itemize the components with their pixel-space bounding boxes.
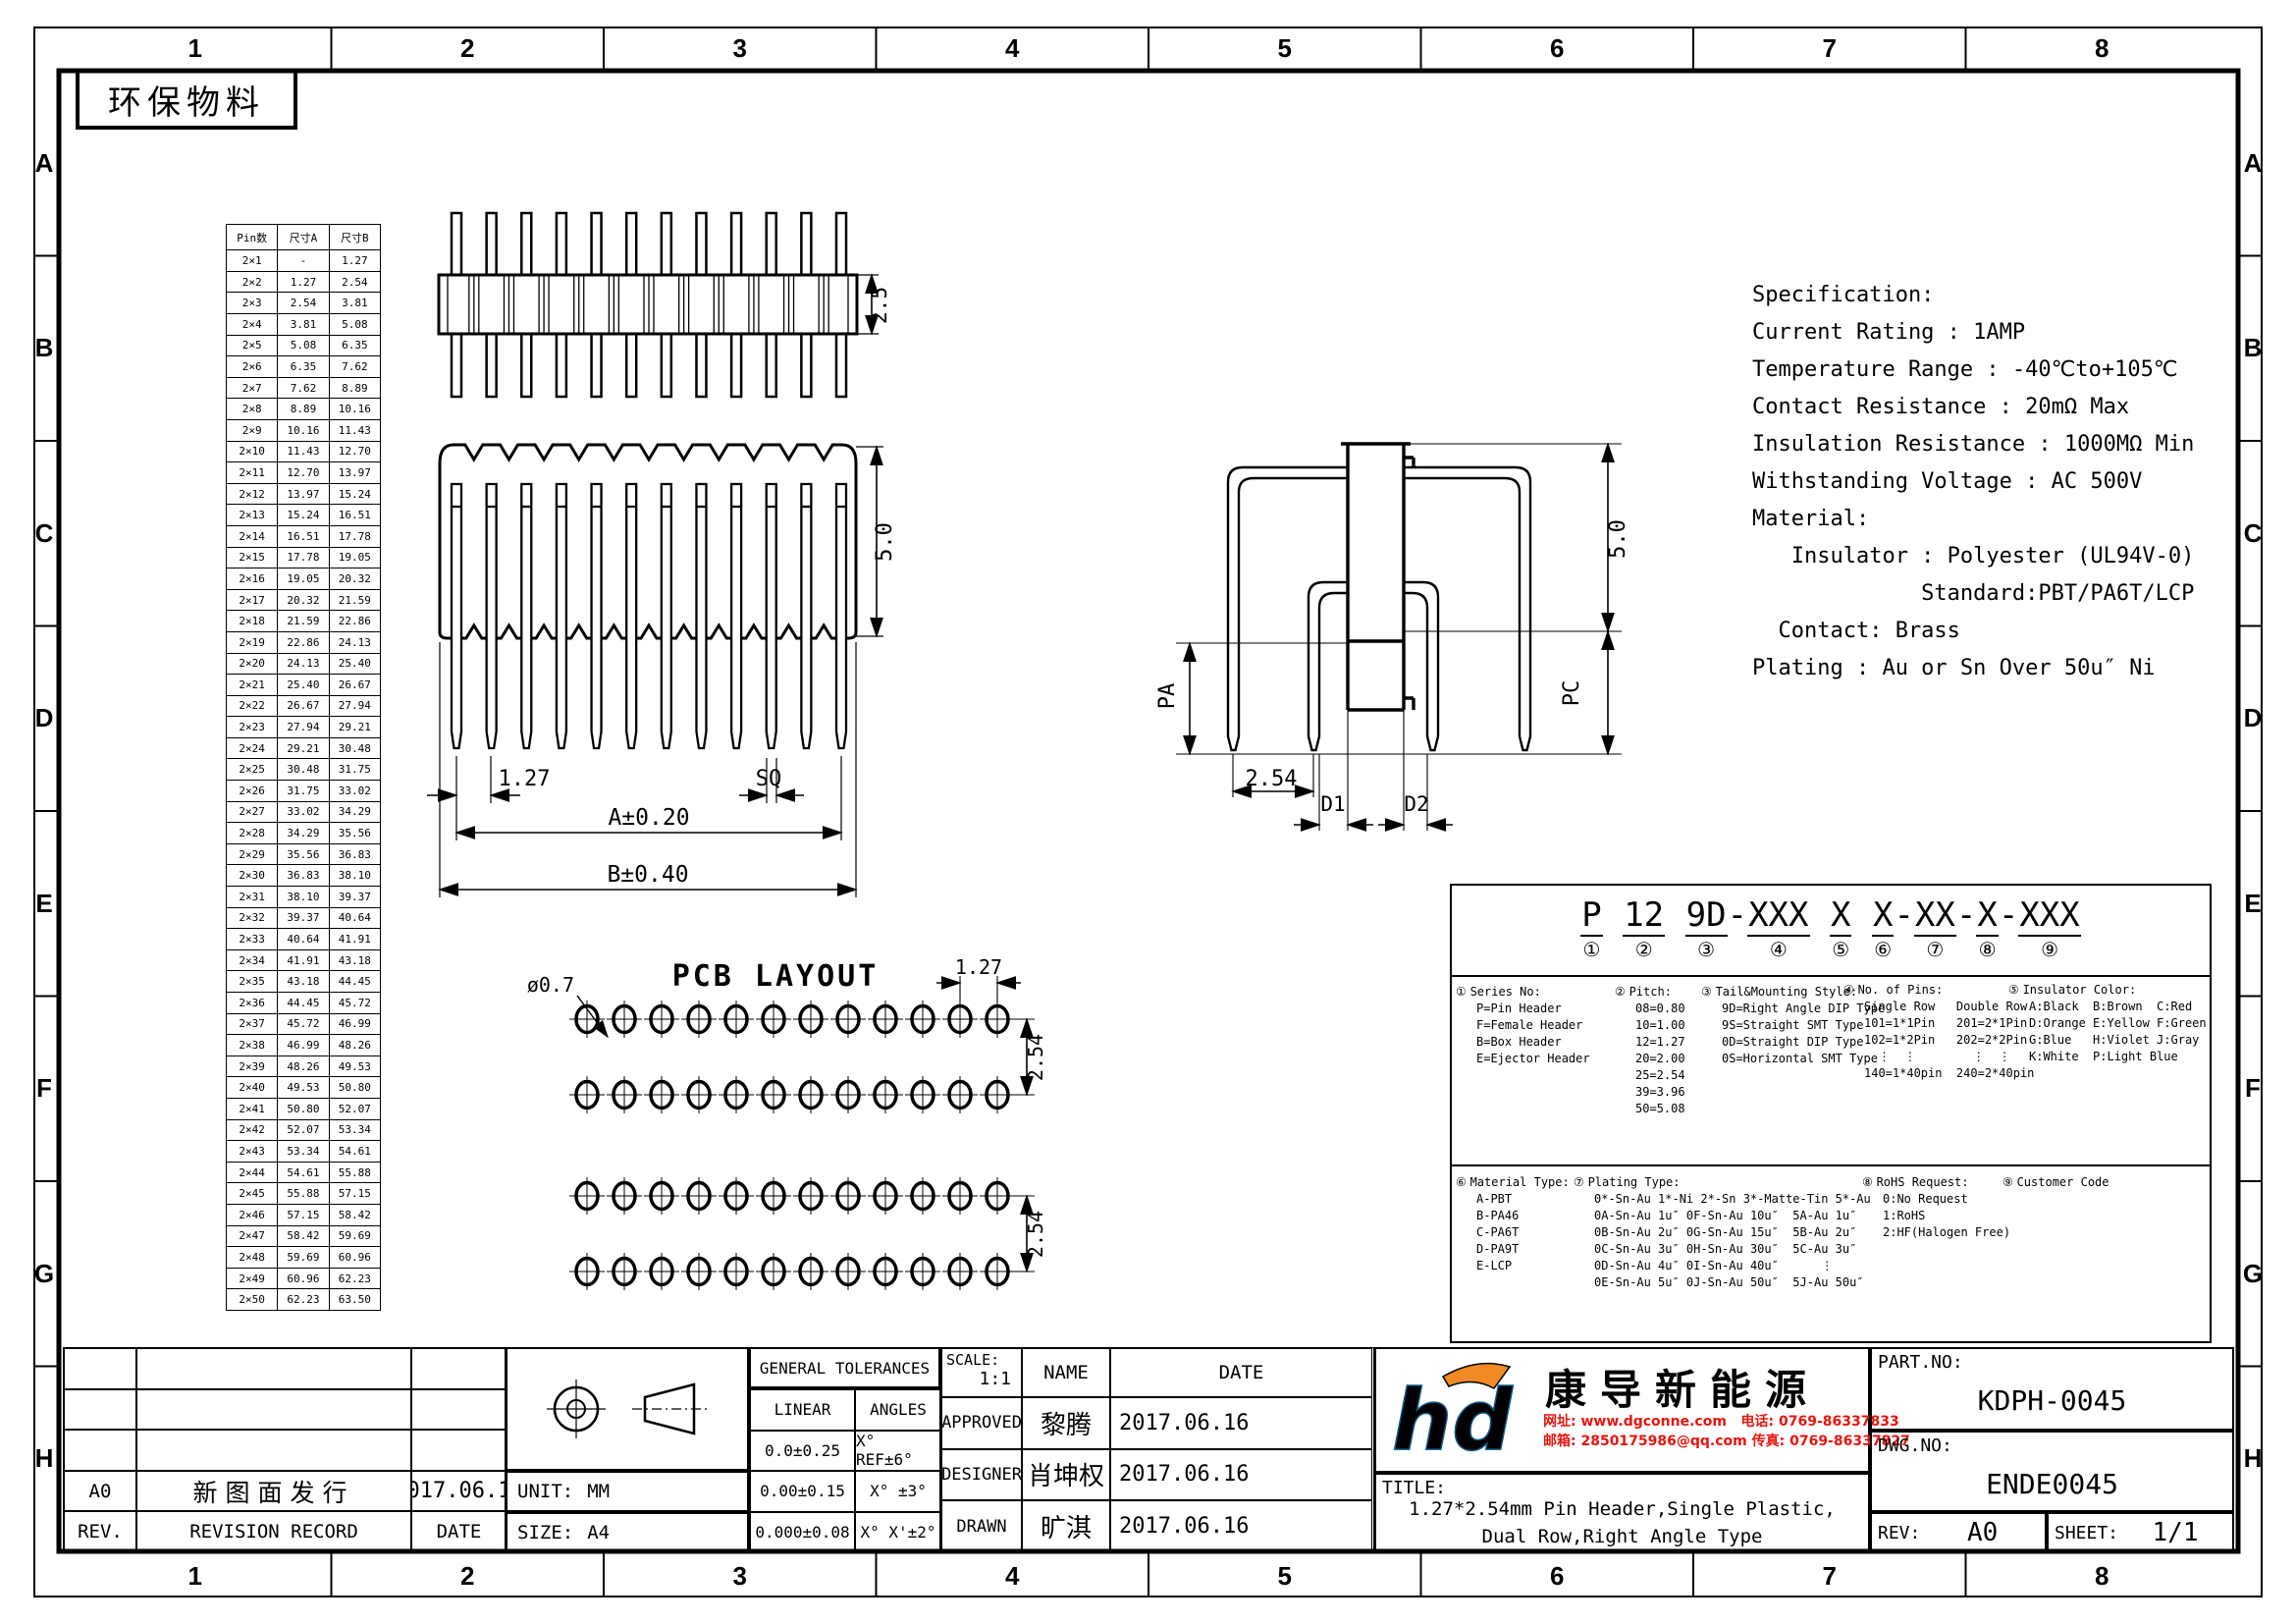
pin-table-row: 2×21.272.54 <box>227 271 381 293</box>
pin-table-row: 2×5062.2363.50 <box>227 1289 381 1311</box>
pin-table-header: Pin数尺寸A尺寸B <box>227 225 381 250</box>
legend-item: B=Box Header <box>1456 1034 1590 1051</box>
part-code-legend-section: ② Pitch:08=0.8010=1.0012=1.2720=2.0025=2… <box>1615 984 1685 1117</box>
dim-top-height: 2.5 <box>868 287 891 324</box>
revision-date-value: 2017.06.16 <box>411 1471 507 1512</box>
dim-front-pitch: 1.27 <box>499 767 551 791</box>
tolerance-angle-value: X° ±3° <box>855 1471 941 1512</box>
pin-table-row: 2×4859.6960.96 <box>227 1247 381 1269</box>
pin-table-row: 2×32.543.81 <box>227 293 381 314</box>
legend-item: A-PBT <box>1456 1191 1570 1208</box>
revision-table: A0 新图面发行 2017.06.16 REV. REVISION RECORD… <box>63 1347 506 1553</box>
legend-item: Single Row Double Row <box>1843 999 2034 1015</box>
dim-side-d1: D1 <box>1320 792 1345 816</box>
revision-empty-cell <box>64 1430 136 1471</box>
pin-table-row: 2×2429.2130.48 <box>227 737 381 759</box>
size-value: A4 <box>587 1522 610 1543</box>
grid-row-label: F <box>32 997 56 1182</box>
grid-row-label: F <box>2241 997 2265 1182</box>
company-name: 康导新能源 <box>1545 1357 1820 1417</box>
part-number-divider-1 <box>1450 975 2212 977</box>
pin-table-row: 2×43.815.08 <box>227 314 381 336</box>
grid-col-label: 1 <box>59 1557 332 1595</box>
pin-table-row: 2×77.628.89 <box>227 377 381 399</box>
size-cell: SIZE: A4 <box>506 1512 749 1553</box>
sheet-value: 1/1 <box>2118 1518 2232 1547</box>
grid-row-label: H <box>2241 1367 2265 1552</box>
company-block: hd 康导新能源 网址: www.dgconne.com 电话: 0769-86… <box>1374 1347 1870 1473</box>
revision-empty-cell <box>411 1430 507 1471</box>
pin-table-row: 2×1821.5922.86 <box>227 611 381 632</box>
grid-col-label: 4 <box>877 1557 1149 1595</box>
tolerances-table: LINEAR ANGLES 0.0±0.25 X° REF±6° 0.00±0.… <box>749 1388 940 1553</box>
legend-item: 0B-Sn-Au 2u″ 0G-Sn-Au 15u″ 5B-Au 2u″ <box>1574 1224 1871 1241</box>
legend-item: 39=3.96 <box>1615 1084 1685 1101</box>
legend-item: 102=1*2Pin 202=2*2Pin <box>1843 1032 2034 1049</box>
grid-row-label: B <box>32 256 56 442</box>
unit-value: MM <box>587 1481 610 1502</box>
legend-item: E=Ejector Header <box>1456 1051 1590 1067</box>
front-view: 5.0 1.27 SQ A±0.20 B±0.40 <box>427 445 897 897</box>
tolerances-angles-label: ANGLES <box>855 1389 941 1431</box>
pin-table-row: 2×1112.7013.97 <box>227 462 381 484</box>
company-contact-line2: 邮箱: 2850175986@qq.com 传真: 0769-86337827 <box>1543 1432 1910 1451</box>
scale-value: 1:1 <box>979 1369 1017 1389</box>
grid-row-label: C <box>2241 441 2265 626</box>
revision-empty-cell <box>136 1348 411 1389</box>
pin-table-row: 2×2024.1325.40 <box>227 653 381 675</box>
approved-name: 黎腾 <box>1022 1397 1110 1449</box>
pin-table-row: 2×1315.2416.51 <box>227 505 381 526</box>
legend-item: D:Orange E:Yellow F:Green <box>2008 1015 2207 1032</box>
code-separator: - <box>1956 895 1976 935</box>
pin-table-row: 2×3138.1039.37 <box>227 887 381 908</box>
dim-side-height: 5.0 <box>1606 519 1630 559</box>
spec-line: Temperature Range : -40℃to+105℃ <box>1752 352 2194 389</box>
pin-table-row: 2×3948.2649.53 <box>227 1056 381 1077</box>
legend-item: B-PA46 <box>1456 1208 1570 1224</box>
pin-dimension-table: Pin数尺寸A尺寸B2×1-1.272×21.272.542×32.543.81… <box>226 224 381 1311</box>
designer-date: 2017.06.16 <box>1110 1449 1372 1501</box>
part-number-divider-2 <box>1450 1164 2212 1166</box>
legend-item: 101=1*1Pin 201=2*1Pin <box>1843 1015 2034 1032</box>
dim-side-pc: PC <box>1560 680 1584 707</box>
designer-name: 肖坤权 <box>1022 1449 1110 1501</box>
pin-table-row: 2×3846.9948.26 <box>227 1035 381 1056</box>
pin-table-row: 2×4353.3454.61 <box>227 1141 381 1163</box>
part-code-legend-section: ⑤ Insulator Color:A:Black B:Brown C:RedD… <box>2008 982 2207 1065</box>
pcb-hole-diameter-label: ø0.7 <box>527 973 574 997</box>
legend-item: 12=1.27 <box>1615 1034 1685 1051</box>
rev-cell: REV: A0 <box>1870 1512 2047 1553</box>
pin-table-row: 2×2226.6727.94 <box>227 695 381 717</box>
legend-item: E-LCP <box>1456 1258 1570 1274</box>
spec-line: Contact: Brass <box>1752 613 2194 650</box>
dwg-no-value: ENDE0045 <box>1872 1468 2232 1500</box>
legend-item: 0E-Sn-Au 5u″ 0J-Sn-Au 50u″ 5J-Au 50u″ <box>1574 1274 1871 1291</box>
grid-col-label: 2 <box>332 1557 605 1595</box>
pcb-layout-title: PCB LAYOUT <box>672 959 880 994</box>
legend-title: ⑨ Customer Code <box>2002 1174 2109 1191</box>
date-column-header: DATE <box>1110 1348 1372 1397</box>
code-segment: XXX⑨ <box>2018 895 2080 961</box>
sheet-label: SHEET: <box>2049 1523 2118 1543</box>
code-separator <box>1603 895 1623 935</box>
code-separator: - <box>1999 895 2018 935</box>
designer-role: DESIGNER <box>941 1449 1022 1501</box>
spec-line: Standard:PBT/PA6T/LCP <box>1752 575 2194 613</box>
name-column-header: NAME <box>1022 1348 1110 1397</box>
legend-item: P=Pin Header <box>1456 1001 1590 1017</box>
dim-front-a: A±0.20 <box>608 805 689 831</box>
code-segment: X⑧ <box>1976 895 1998 961</box>
legend-item: 140=1*40pin 240=2*40pin <box>1843 1065 2034 1082</box>
pin-table-row: 2×55.086.35 <box>227 335 381 356</box>
pcb-layout: PCB LAYOUT ø0.7 1.27 2.54 2.54 <box>527 955 1047 1290</box>
revision-date-label: DATE <box>411 1511 507 1552</box>
grid-row-label: A <box>2241 71 2265 256</box>
legend-item: 1:RoHS <box>1862 1208 2010 1224</box>
size-label: SIZE: <box>517 1522 573 1543</box>
dim-side-pitch: 2.54 <box>1246 767 1298 791</box>
legend-title: ⑧ RoHS Request: <box>1862 1174 2010 1191</box>
revision-rev-label: REV. <box>64 1511 136 1552</box>
legend-title: ⑥ Material Type: <box>1456 1174 1570 1191</box>
grid-col-label: 6 <box>1421 1557 1694 1595</box>
dim-front-b: B±0.40 <box>607 862 688 888</box>
grid-row-label: E <box>2241 811 2265 997</box>
part-no-cell: PART.NO: KDPH-0045 <box>1870 1347 2234 1431</box>
legend-item: 25=2.54 <box>1615 1067 1685 1084</box>
tolerance-angle-value: X° REF±6° <box>855 1431 941 1472</box>
grid-col-label: 7 <box>1693 1557 1966 1595</box>
part-code-legend-section: ⑥ Material Type:A-PBTB-PA46C-PA6TD-PA9TE… <box>1456 1174 1570 1274</box>
tolerance-linear-value: 0.0±0.25 <box>750 1431 855 1472</box>
legend-item: 2:HF(Halogen Free) <box>1862 1224 2010 1241</box>
dim-front-sq: SQ <box>756 767 782 791</box>
code-separator: - <box>1894 895 1913 935</box>
pcb-dim-row-top: 2.54 <box>1024 1034 1047 1081</box>
pin-table-row: 2×1922.8624.13 <box>227 631 381 653</box>
drawn-role: DRAWN <box>941 1500 1022 1552</box>
code-separator: - <box>1728 895 1747 935</box>
pin-table-row: 2×2125.4026.67 <box>227 675 381 696</box>
revision-record-label: REVISION RECORD <box>136 1511 411 1552</box>
third-angle-projection-icon <box>529 1365 725 1453</box>
pin-table-row: 2×2530.4831.75 <box>227 759 381 781</box>
approvals-table: SCALE: 1:1 NAME DATE APPROVED 黎腾 2017.06… <box>940 1347 1374 1553</box>
legend-item: 0:No Request <box>1862 1191 2010 1208</box>
pin-table-row: 2×3441.9143.18 <box>227 949 381 971</box>
legend-item: 0A-Sn-Au 1u″ 0F-Sn-Au 10u″ 5A-Au 1u″ <box>1574 1208 1871 1224</box>
grid-col-label: 5 <box>1148 29 1421 67</box>
grid-col-label: 8 <box>1966 1557 2239 1595</box>
pin-table-row: 2×3644.4545.72 <box>227 993 381 1014</box>
drawn-date: 2017.06.16 <box>1110 1500 1372 1552</box>
pin-table-row: 2×66.357.62 <box>227 356 381 378</box>
pin-table-row: 2×4454.6155.88 <box>227 1162 381 1183</box>
grid-col-label: 8 <box>1966 29 2239 67</box>
scale-cell: SCALE: 1:1 <box>941 1348 1022 1397</box>
grid-col-label: 6 <box>1421 29 1694 67</box>
pin-table-row: 2×3543.1844.45 <box>227 971 381 993</box>
spec-line: Withstanding Voltage : AC 500V <box>1752 463 2194 501</box>
spec-line: Material: <box>1752 501 2194 538</box>
spec-line: Insulator : Polyester (UL94V-0) <box>1752 538 2194 575</box>
legend-title: ④ No. of Pins: <box>1843 982 2034 999</box>
sheet-cell: SHEET: 1/1 <box>2047 1512 2234 1553</box>
code-segment: X⑥ <box>1872 895 1894 961</box>
legend-title: ② Pitch: <box>1615 984 1685 1001</box>
grid-row-label: D <box>2241 626 2265 812</box>
grid-col-label: 1 <box>59 29 332 67</box>
grid-row-label: G <box>2241 1181 2265 1367</box>
pin-table-row: 2×2327.9429.21 <box>227 717 381 738</box>
revision-empty-cell <box>64 1348 136 1389</box>
pin-table-row: 2×4555.8857.15 <box>227 1183 381 1205</box>
pin-table-row: 2×1-1.27 <box>227 250 381 272</box>
grid-row-label: B <box>2241 256 2265 442</box>
legend-item: 20=2.00 <box>1615 1051 1685 1067</box>
title-cell: TITLE: 1.27*2.54mm Pin Header,Single Pla… <box>1374 1473 1870 1553</box>
revision-empty-cell <box>411 1389 507 1431</box>
grid-row-label: D <box>32 626 56 812</box>
pin-table-row: 2×4758.4259.69 <box>227 1225 381 1247</box>
drawing-sheet: 2.5 5.0 1.27 SQ <box>0 0 2296 1624</box>
pin-table-row: 2×3745.7246.99 <box>227 1013 381 1035</box>
grid-col-label: 2 <box>332 29 605 67</box>
code-segment: 12② <box>1623 895 1665 961</box>
title-label: TITLE: <box>1382 1478 1446 1498</box>
tolerance-linear-value: 0.000±0.08 <box>750 1512 855 1553</box>
spec-line: Insulation Resistance : 1000MΩ Min <box>1752 426 2194 463</box>
legend-item: 0D-Sn-Au 4u″ 0I-Sn-Au 40u″ ⋮ <box>1574 1258 1871 1274</box>
company-contact-line1: 网址: www.dgconne.com 电话: 0769-86337833 <box>1543 1412 1910 1432</box>
part-code-legend-section: ① Series No:P=Pin HeaderF=Female HeaderB… <box>1456 984 1590 1067</box>
rev-value: A0 <box>1920 1518 2045 1547</box>
dwg-no-cell: DWG.NO: ENDE0045 <box>1870 1431 2234 1512</box>
company-logo: hd <box>1384 1355 1536 1465</box>
pin-table-row: 2×2935.5636.83 <box>227 843 381 865</box>
legend-item: F=Female Header <box>1456 1017 1590 1034</box>
code-separator <box>1665 895 1684 935</box>
side-view: PA PC 5.0 2.54 D1 D2 <box>1155 444 1630 831</box>
dim-side-d2: D2 <box>1404 792 1428 816</box>
grid-row-label: H <box>32 1367 56 1552</box>
legend-item: G:Blue H:Violet J:Gray <box>2008 1032 2207 1049</box>
grid-col-label: 3 <box>604 29 877 67</box>
title-line2: Dual Row,Right Angle Type <box>1376 1526 1868 1547</box>
legend-item: 10=1.00 <box>1615 1017 1685 1034</box>
revision-empty-cell <box>64 1389 136 1431</box>
grid-row-label: E <box>32 811 56 997</box>
part-code-legend-section: ④ No. of Pins:Single Row Double Row101=1… <box>1843 982 2034 1082</box>
grid-row-label: A <box>32 71 56 256</box>
unit-cell: UNIT: MM <box>506 1471 749 1512</box>
projection-cell <box>506 1347 749 1471</box>
approved-date: 2017.06.16 <box>1110 1397 1372 1449</box>
part-no-value: KDPH-0045 <box>1872 1384 2232 1417</box>
dim-front-height: 5.0 <box>873 522 897 562</box>
code-segment: 9D③ <box>1685 895 1728 961</box>
eco-material-label: 环保物料 <box>76 69 297 130</box>
rev-label: REV: <box>1872 1523 1920 1543</box>
scale-label: SCALE: <box>946 1351 999 1369</box>
part-code-legend-section: ⑧ RoHS Request:0:No Request1:RoHS2:HF(Ha… <box>1862 1174 2010 1241</box>
part-number-code: P① 12② 9D③-XXX④ X⑤ X⑥-XX⑦-X⑧-XXX⑨ <box>1450 895 2212 961</box>
legend-item: A:Black B:Brown C:Red <box>2008 999 2207 1015</box>
legend-title: ① Series No: <box>1456 984 1590 1001</box>
legend-title: ⑦ Plating Type: <box>1574 1174 1871 1191</box>
drawn-name: 旷淇 <box>1022 1500 1110 1552</box>
tolerance-angle-value: X° X'±2° <box>855 1512 941 1553</box>
pin-table-row: 2×4049.5350.80 <box>227 1077 381 1099</box>
revision-empty-cell <box>411 1348 507 1389</box>
legend-item: 08=0.80 <box>1615 1001 1685 1017</box>
code-segment: XXX④ <box>1747 895 1809 961</box>
revision-record-value: 新图面发行 <box>136 1471 411 1512</box>
code-separator <box>1810 895 1830 935</box>
pin-table-row: 2×4252.0753.34 <box>227 1119 381 1141</box>
legend-item: 0*-Sn-Au 1*-Ni 2*-Sn 3*-Matte-Tin 5*-Au <box>1574 1191 1871 1208</box>
legend-item: ⋮ ⋮ ⋮ ⋮ <box>1843 1049 2034 1065</box>
tolerance-linear-value: 0.00±0.15 <box>750 1471 855 1512</box>
grid-col-label: 5 <box>1148 1557 1421 1595</box>
pin-table-row: 2×2733.0234.29 <box>227 801 381 823</box>
pin-table-row: 2×1416.5117.78 <box>227 525 381 547</box>
code-segment: X⑤ <box>1830 895 1851 961</box>
pin-table-row: 2×2834.2935.56 <box>227 823 381 844</box>
pin-table-row: 2×1720.3221.59 <box>227 589 381 611</box>
part-code-legend-section: ⑦ Plating Type:0*-Sn-Au 1*-Ni 2*-Sn 3*-M… <box>1574 1174 1871 1291</box>
code-segment: XX⑦ <box>1914 895 1956 961</box>
grid-col-label: 7 <box>1693 29 1966 67</box>
legend-item: C-PA6T <box>1456 1224 1570 1241</box>
code-separator <box>1851 895 1871 935</box>
pcb-dim-pitch: 1.27 <box>955 955 1002 979</box>
spec-line: Specification: <box>1752 277 2194 314</box>
tolerances-title: GENERAL TOLERANCES <box>749 1347 940 1388</box>
unit-label: UNIT: <box>517 1481 573 1502</box>
pin-table-row: 2×88.8910.16 <box>227 399 381 420</box>
pin-table-row: 2×910.1611.43 <box>227 419 381 441</box>
pin-table-row: 2×4150.8052.07 <box>227 1098 381 1119</box>
grid-col-label: 4 <box>877 29 1149 67</box>
pcb-dim-row-bottom: 2.54 <box>1024 1211 1047 1258</box>
part-no-label: PART.NO: <box>1878 1352 1963 1373</box>
legend-item: K:White P:Light Blue <box>2008 1049 2207 1065</box>
grid-row-label: C <box>32 441 56 626</box>
tolerances-linear-label: LINEAR <box>750 1389 855 1431</box>
top-view: 2.5 <box>439 213 891 397</box>
pin-table-row: 2×4960.9662.23 <box>227 1268 381 1289</box>
pin-table-row: 2×4657.1558.42 <box>227 1204 381 1225</box>
revision-empty-cell <box>136 1430 411 1471</box>
pin-table-row: 2×1213.9715.24 <box>227 483 381 505</box>
title-line1: 1.27*2.54mm Pin Header,Single Plastic, <box>1376 1498 1868 1520</box>
pin-table-row: 2×1619.0520.32 <box>227 568 381 590</box>
grid-row-label: G <box>32 1181 56 1367</box>
spec-line: Plating : Au or Sn Over 50u″ Ni <box>1752 650 2194 687</box>
legend-item: 0C-Sn-Au 3u″ 0H-Sn-Au 30u″ 5C-Au 3u″ <box>1574 1241 1871 1258</box>
svg-text:hd: hd <box>1392 1372 1514 1465</box>
revision-rev-value: A0 <box>64 1471 136 1512</box>
pin-table-row: 2×3340.6441.91 <box>227 929 381 950</box>
part-code-legend-section: ⑨ Customer Code <box>2002 1174 2109 1191</box>
legend-title: ⑤ Insulator Color: <box>2008 982 2207 999</box>
code-segment: P① <box>1580 895 1602 961</box>
pin-table-row: 2×3036.8338.10 <box>227 865 381 887</box>
revision-empty-cell <box>136 1389 411 1431</box>
pin-table-row: 2×3239.3740.64 <box>227 907 381 929</box>
pin-table-row: 2×1011.4312.70 <box>227 441 381 462</box>
spec-line: Current Rating : 1AMP <box>1752 314 2194 352</box>
spec-line: Contact Resistance : 20mΩ Max <box>1752 389 2194 426</box>
legend-item: 50=5.08 <box>1615 1101 1685 1117</box>
pin-table-row: 2×2631.7533.02 <box>227 781 381 802</box>
dim-side-pa: PA <box>1155 683 1180 710</box>
eco-material-text: 环保物料 <box>108 76 265 124</box>
approved-role: APPROVED <box>941 1397 1022 1449</box>
dwg-no-label: DWG.NO: <box>1878 1435 1952 1456</box>
legend-item: D-PA9T <box>1456 1241 1570 1258</box>
specification-block: Specification:Current Rating : 1AMPTempe… <box>1752 277 2194 687</box>
pin-table-row: 2×1517.7819.05 <box>227 547 381 568</box>
grid-col-label: 3 <box>604 1557 877 1595</box>
